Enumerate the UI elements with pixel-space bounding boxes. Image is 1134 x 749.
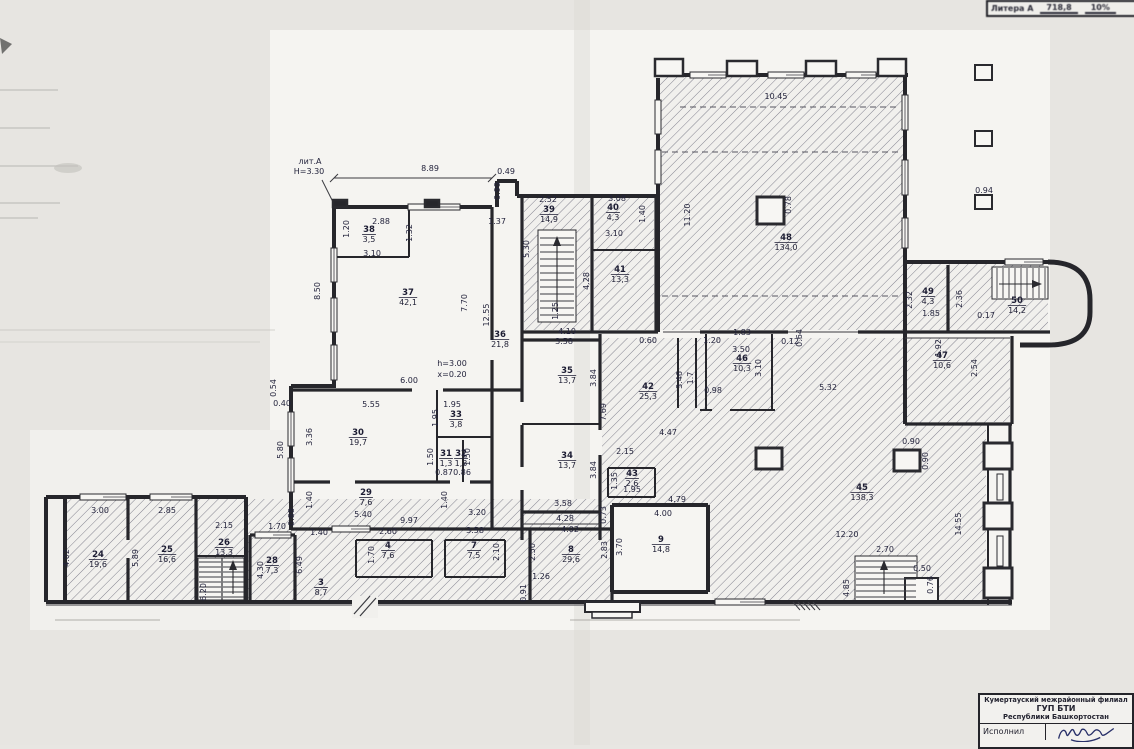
dim-label: 5.40 (354, 510, 372, 519)
room-area: 3,8 (450, 420, 463, 429)
room-number: 39 (543, 205, 555, 215)
dim-label: 5.89 (131, 549, 140, 567)
room-area: 1,3 (455, 459, 468, 468)
room-area: 19,6 (89, 560, 107, 569)
room-number: 35 (561, 366, 573, 376)
dim-label: 2.83 (600, 541, 609, 559)
dim-label: 1.70 (268, 522, 286, 531)
room-number: 32 (455, 449, 467, 459)
room-number: 45 (856, 483, 868, 493)
room-number: 28 (266, 556, 278, 566)
executor-label: Исполнил (980, 724, 1046, 740)
dim-label: 9.97 (400, 516, 418, 525)
dim-label: 12.55 (482, 304, 491, 327)
room-area: 2,6 (626, 479, 639, 488)
dim-label: 0.87 (435, 468, 453, 477)
dim-label: 2.15 (616, 447, 634, 456)
executor-signature (1046, 724, 1132, 740)
room-area: 10,6 (933, 361, 951, 370)
dim-label: x=0.20 (437, 370, 466, 379)
room-number: 3 (318, 578, 324, 588)
dim-label: 2.32 (905, 291, 914, 309)
dim-label: 0.40 (273, 399, 291, 408)
dim-label: 2.70 (876, 545, 894, 554)
room-area: 13,7 (558, 461, 576, 470)
room-number: 36 (494, 330, 506, 340)
dim-label: 2.54 (970, 359, 979, 377)
dim-label: 5.55 (362, 400, 380, 409)
dim-label: 3.20 (468, 508, 486, 517)
dim-label: 3.58 (466, 526, 484, 535)
dim-label: 0.98 (704, 386, 722, 395)
room-area: 25,3 (639, 392, 657, 401)
dim-label: 0.60 (639, 336, 657, 345)
room-number: 4 (385, 541, 391, 551)
dim-label: лит.А (299, 157, 323, 166)
dim-label: 3.10 (363, 249, 381, 258)
room-number: 42 (642, 382, 654, 392)
dim-label: 3.84 (589, 461, 598, 479)
dim-label: 0.94 (975, 186, 993, 195)
dim-label: 3.10 (605, 229, 623, 238)
dim-label: 0.54 (269, 379, 278, 397)
room-number: 8 (568, 545, 574, 555)
title-block: Кумертауский межрайонный филиал ГУП БТИ … (978, 693, 1134, 749)
dim-label: 0.17 (977, 311, 995, 320)
dim-label: 0.49 (497, 167, 515, 176)
room-number: 24 (92, 550, 104, 560)
dim-label: 1.70 (367, 546, 376, 564)
room-area: 134,0 (775, 243, 798, 252)
dim-label: 4.79 (668, 495, 686, 504)
room-area: 7,6 (382, 551, 395, 560)
dim-label: 5.32 (819, 383, 837, 392)
room-area: 13,7 (558, 376, 576, 385)
dim-label: 0.88 (287, 508, 296, 526)
dim-label: 0.86 (453, 468, 471, 477)
dim-label: 1.40 (440, 491, 449, 509)
dim-label: 12.20 (836, 530, 859, 539)
dim-label: 3.84 (589, 369, 598, 387)
dim-label: 0.78 (784, 196, 793, 214)
room-area: 7,6 (360, 498, 373, 507)
dim-label: 2.52 (539, 195, 557, 204)
litera-value-2: 10% (1085, 3, 1116, 14)
dim-label: 14.55 (954, 513, 963, 536)
dim-label: 7.70 (460, 294, 469, 312)
dim-label: 1.20 (342, 220, 351, 238)
dim-label: 1.95 (431, 409, 440, 427)
dim-label: 0.90 (921, 452, 930, 470)
dim-label: 3.36 (305, 428, 314, 446)
room-area: 1,3 (440, 459, 453, 468)
dim-label: 1.83 (733, 328, 751, 337)
room-number: 48 (780, 233, 792, 243)
dim-label: 0.50 (913, 564, 931, 573)
dim-label: 2.50 (528, 543, 537, 561)
dim-label: 4.85 (842, 579, 851, 597)
room-number: 9 (658, 535, 664, 545)
room-number: 26 (218, 538, 230, 548)
scanned-floor-plan: лит.АН=3.30h=3.00x=0.208.890.490.991.372… (0, 0, 1134, 745)
dim-label: 3.70 (615, 538, 624, 556)
org-name-line2: ГУП БТИ (980, 704, 1132, 713)
dim-label: 2.10 (492, 543, 501, 561)
dim-label: 0.91 (519, 584, 528, 602)
room-number: 34 (561, 451, 573, 461)
room-area: 4,3 (922, 297, 935, 306)
room-area: 14,9 (540, 215, 558, 224)
room-area: 4,3 (607, 213, 620, 222)
dim-label: 1.32 (405, 224, 414, 242)
room-number: 43 (626, 469, 638, 479)
dim-label: 6.49 (295, 556, 304, 574)
room-number: 37 (402, 288, 414, 298)
signature-scribble (1046, 724, 1132, 742)
room-area: 19,7 (349, 438, 367, 447)
dim-label: 1.25 (551, 302, 560, 320)
dim-label: 6.00 (400, 376, 418, 385)
dim-label: 4.02 (561, 525, 579, 534)
org-name-line1: Кумертауский межрайонный филиал (980, 696, 1132, 704)
dim-label: 7.69 (599, 403, 608, 421)
dim-label: 6.20 (199, 583, 208, 601)
room-area: 16,6 (158, 555, 176, 564)
dim-label: 4.30 (256, 561, 265, 579)
room-area: 13,3 (611, 275, 629, 284)
room-number: 40 (607, 203, 619, 213)
litera-label: Литера А (991, 4, 1033, 13)
room-area: 29,6 (562, 555, 580, 564)
room-area: 21,8 (491, 340, 509, 349)
room-area: 8,7 (315, 588, 328, 597)
dim-label: 1.95 (443, 400, 461, 409)
room-area: 14,8 (652, 545, 670, 554)
dim-label: 8.50 (313, 282, 322, 300)
room-number: 25 (161, 545, 173, 555)
dim-label: 3.58 (555, 337, 573, 346)
dim-label: 5.80 (276, 441, 285, 459)
room-number: 33 (450, 410, 462, 420)
dim-label: 3.58 (554, 499, 572, 508)
dim-label: 11.20 (683, 204, 692, 227)
room-area: 14,2 (1008, 306, 1026, 315)
dim-label: 5.30 (522, 240, 531, 258)
dim-label: 1.20 (703, 336, 721, 345)
org-name-line3: Республики Башкортостан (980, 713, 1132, 724)
dim-label: 1.35 (610, 472, 619, 490)
dim-label: h=3.00 (437, 359, 467, 368)
dim-label: 1.40 (310, 528, 328, 537)
dim-label: 3.46 (675, 371, 684, 389)
dim-label: 10.45 (765, 92, 788, 101)
dim-label: 1.7 (686, 372, 695, 385)
room-number: 41 (614, 265, 626, 275)
room-area: 3,5 (363, 235, 376, 244)
room-number: 50 (1011, 296, 1023, 306)
room-area: 7,3 (266, 566, 279, 575)
dim-label: 8.89 (421, 164, 439, 173)
litera-value-1: 718,8 (1040, 3, 1077, 14)
room-number: 47 (936, 351, 948, 361)
dim-label: 1.26 (532, 572, 550, 581)
dim-label: 4.28 (582, 272, 591, 290)
room-number: 46 (736, 354, 748, 364)
room-number: 49 (922, 287, 934, 297)
dim-label: 4.02 (62, 549, 71, 567)
dim-label: 4.00 (654, 509, 672, 518)
dim-label: 0.73 (599, 506, 608, 524)
room-number: 29 (360, 488, 372, 498)
dim-label: 0.76 (926, 576, 935, 594)
dim-label: 3.00 (91, 506, 109, 515)
dim-label: 3.50 (732, 345, 750, 354)
room-number: 30 (352, 428, 364, 438)
dim-label: 2.85 (158, 506, 176, 515)
room-area: 138,3 (851, 493, 874, 502)
room-area: 10,3 (733, 364, 751, 373)
room-area: 13,3 (215, 548, 233, 557)
dim-label: 0.90 (902, 437, 920, 446)
room-area: 42,1 (399, 298, 417, 307)
room-number: 31 (440, 449, 452, 459)
dim-label: Н=3.30 (294, 167, 325, 176)
floor-plan-drawing: лит.АН=3.30h=3.00x=0.208.890.490.991.372… (0, 0, 1134, 745)
dim-label: 4.10 (558, 327, 576, 336)
dim-label: 2.60 (379, 527, 397, 536)
dim-label: 1.37 (488, 217, 506, 226)
dim-label: 1.85 (922, 309, 940, 318)
dim-label: 1.40 (305, 491, 314, 509)
dim-label: 0.64 (795, 329, 804, 347)
dim-label: 0.99 (493, 182, 502, 200)
dim-label: 3.10 (754, 359, 763, 377)
room-area: 7,5 (468, 551, 481, 560)
dim-label: 1.40 (638, 205, 647, 223)
dim-label: 4.28 (556, 514, 574, 523)
dim-label: 2.36 (955, 290, 964, 308)
dim-label: 3.08 (608, 194, 626, 203)
litera-strip: Литера А 718,8 10% (986, 0, 1134, 17)
room-number: 38 (363, 225, 375, 235)
dim-label: 1.50 (426, 448, 435, 466)
dim-label: 2.15 (215, 521, 233, 530)
room-number: 7 (471, 541, 477, 551)
dim-label: 4.47 (659, 428, 677, 437)
